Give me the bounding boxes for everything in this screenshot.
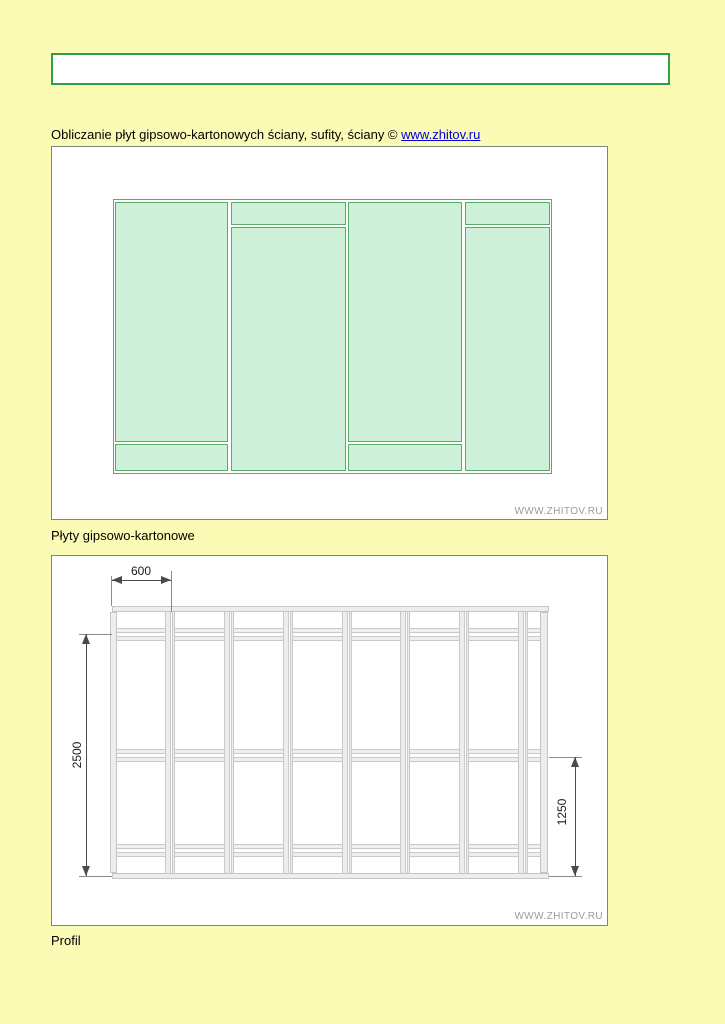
dim-600-ext-right (171, 571, 172, 612)
sheets-diagram-label: Płyty gipsowo-kartonowe (51, 528, 195, 543)
page-title: Obliczanie płyt gipsowo-kartonowych ścia… (51, 127, 480, 142)
dim-2500-ext-bottom (79, 876, 112, 877)
dim-1250-line (575, 757, 576, 876)
profile-diagram-label: Profil (51, 933, 81, 948)
page: { "header": { "title": "Obliczanie płyt … (0, 0, 725, 1024)
sheet-c3-main (348, 202, 462, 442)
title-text: Obliczanie płyt gipsowo-kartonowych ścia… (51, 127, 398, 142)
sheet-c4-offcut (465, 202, 550, 225)
sheet-c4-main (465, 227, 550, 471)
edge-stud-left (110, 612, 117, 873)
sheet-c1-offcut (115, 444, 228, 471)
sheet-c2-main (231, 227, 346, 471)
top-track (112, 606, 549, 612)
stud (342, 612, 352, 873)
watermark: WWW.ZHITOV.RU (514, 911, 603, 922)
banner-box (51, 53, 670, 85)
noggin-row-middle (113, 749, 547, 762)
sheets-diagram-panel: WWW.ZHITOV.RU (51, 146, 608, 520)
profile-diagram-panel: 600 2500 1250 WWW.ZHITOV.RU (51, 555, 608, 926)
stud (283, 612, 293, 873)
dim-1250-ext-bottom (549, 876, 582, 877)
sheet-c1-main (115, 202, 228, 442)
watermark: WWW.ZHITOV.RU (514, 506, 603, 517)
stud (224, 612, 234, 873)
dim-1250-arrow-top (571, 757, 579, 767)
dim-2500-label: 2500 (70, 725, 84, 785)
sheet-c2-offcut (231, 202, 346, 225)
stud (165, 612, 175, 873)
noggin-row-top (113, 628, 547, 641)
noggin-row-bottom (113, 844, 547, 857)
dim-2500-arrow-top (82, 634, 90, 644)
stud (459, 612, 469, 873)
edge-stud-right (540, 612, 548, 873)
dim-1250-arrow-bottom (571, 866, 579, 876)
dim-2500-line (86, 634, 87, 876)
dim-1250-label: 1250 (555, 782, 569, 842)
stud (518, 612, 528, 873)
sheet-c3-offcut (348, 444, 462, 471)
bottom-track (112, 873, 549, 879)
dim-600-label: 600 (111, 564, 171, 578)
dim-2500-arrow-bottom (82, 866, 90, 876)
zhitov-link[interactable]: www.zhitov.ru (401, 127, 480, 142)
stud (400, 612, 410, 873)
